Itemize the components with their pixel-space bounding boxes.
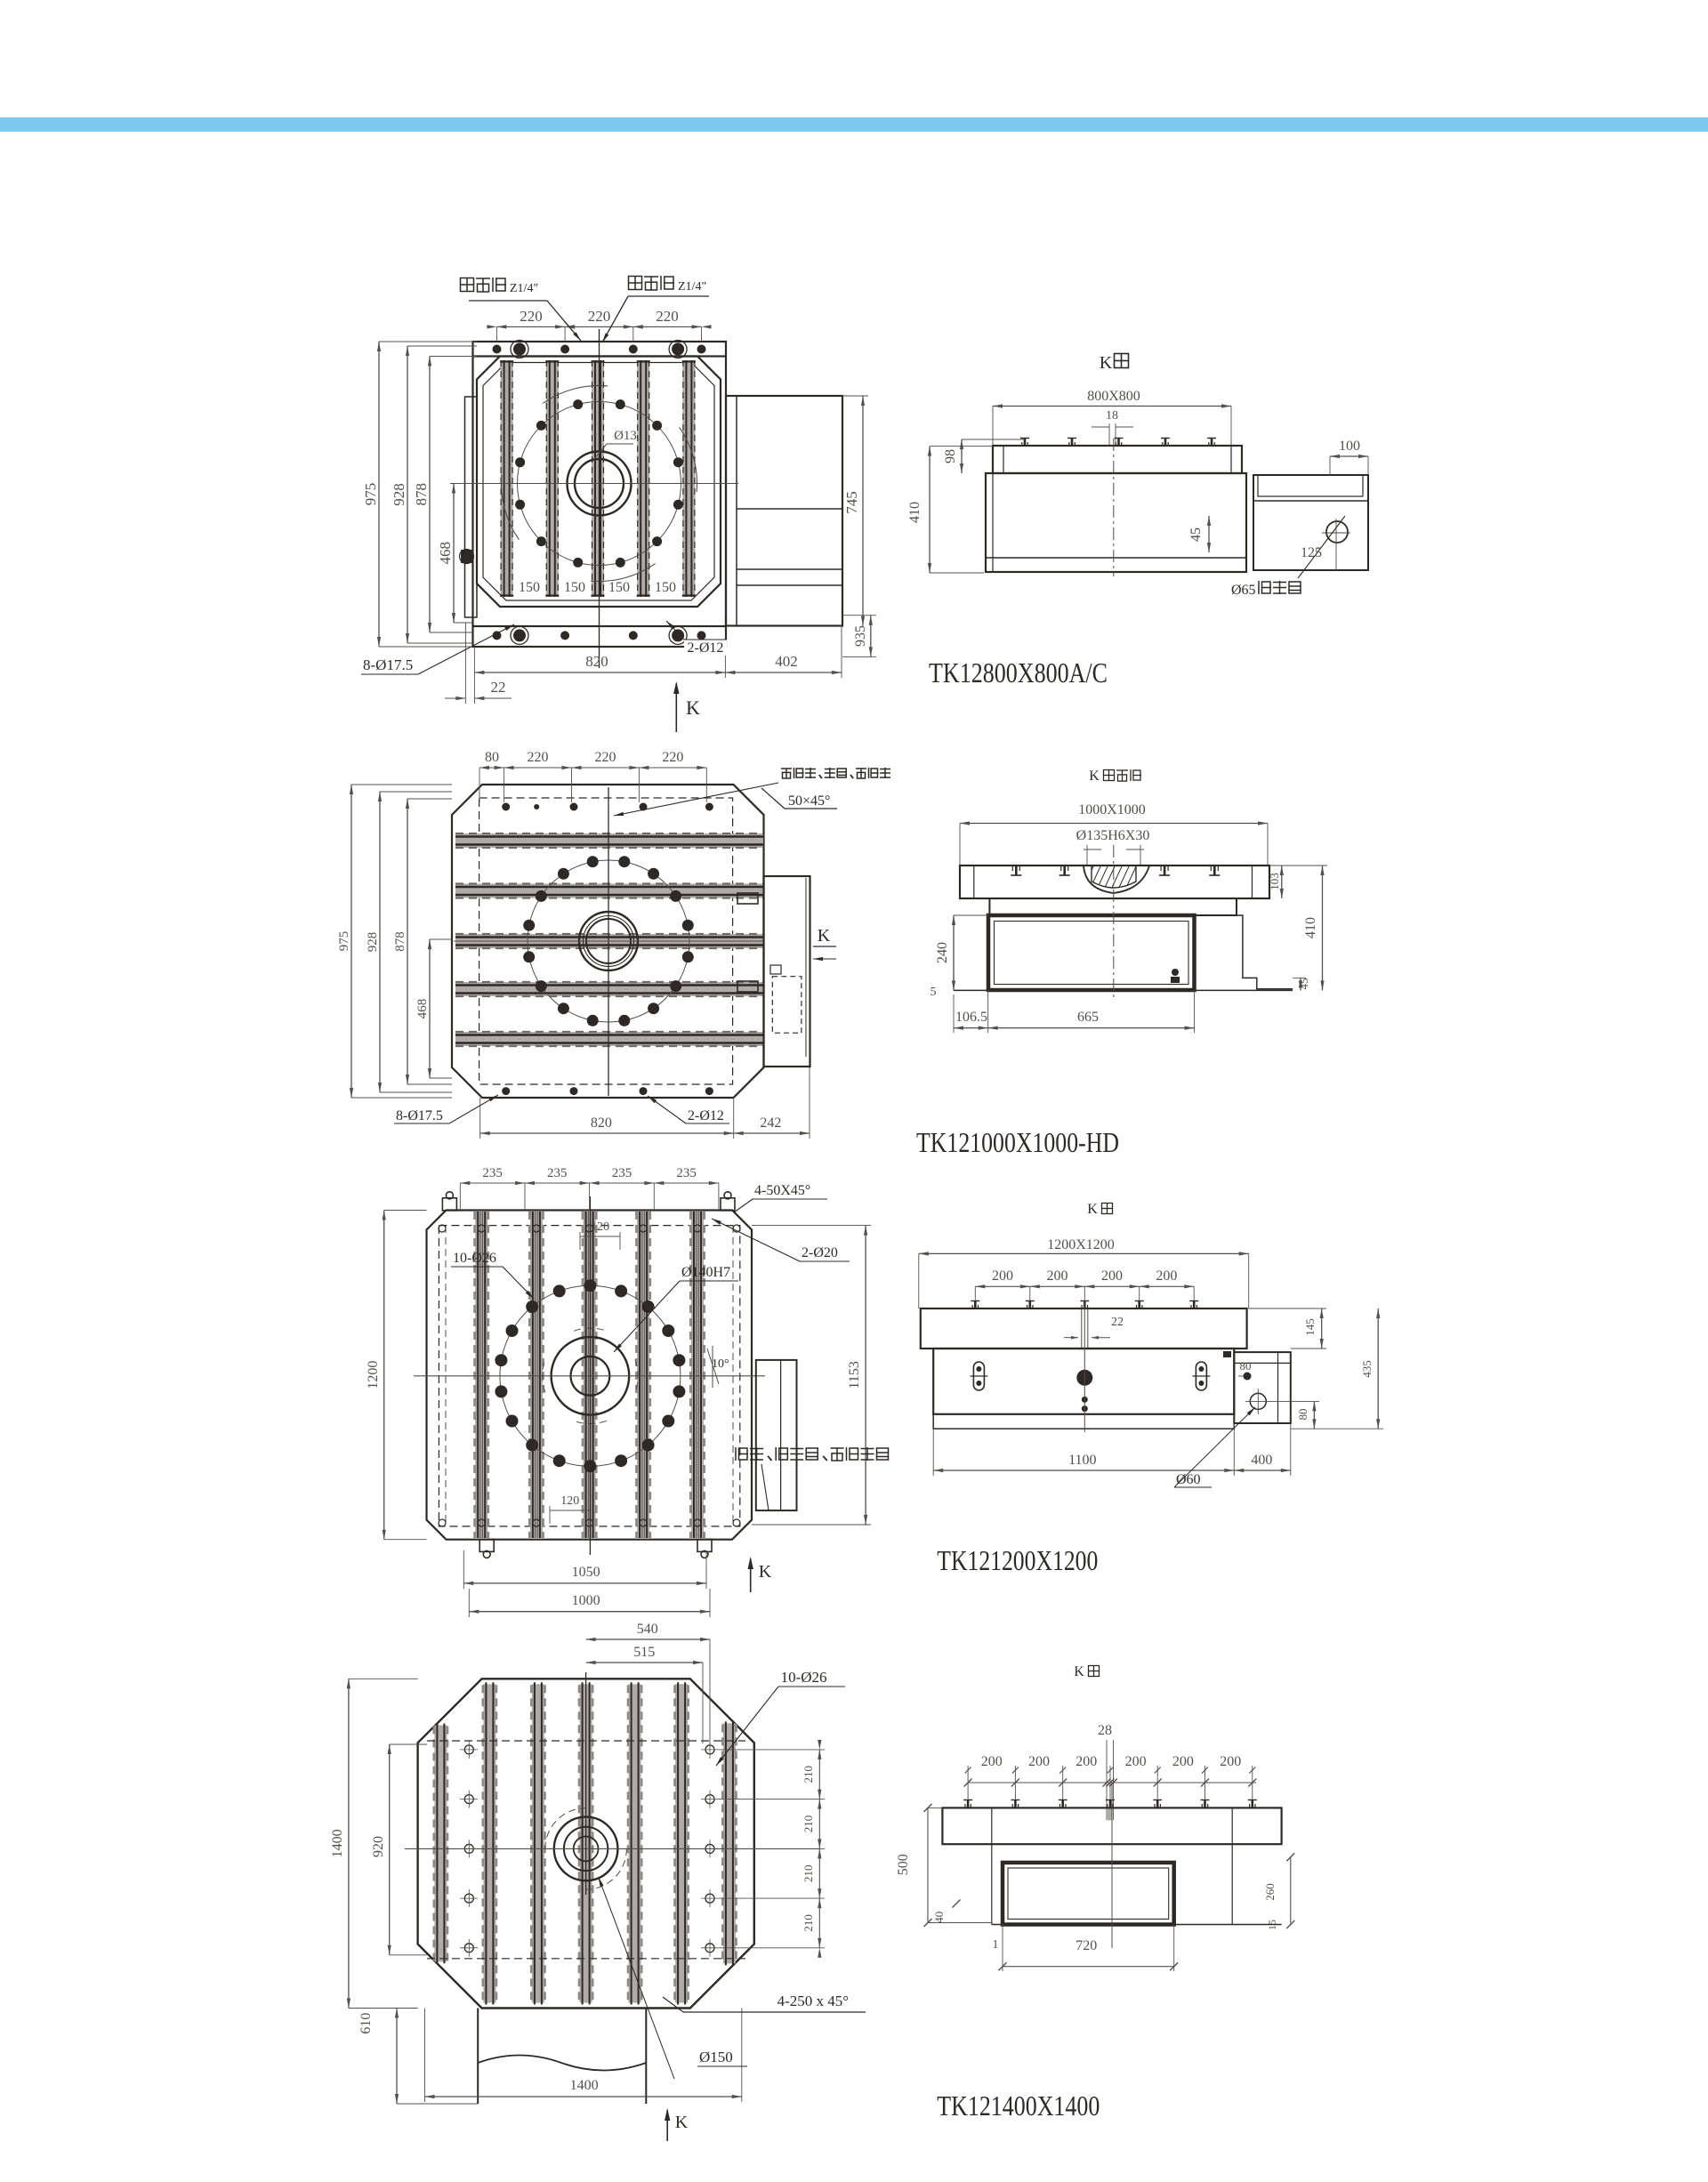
svg-text:235: 235 [547,1166,568,1180]
svg-text:28: 28 [1098,1723,1112,1738]
svg-text:150: 150 [564,580,585,595]
svg-text:935: 935 [853,625,868,647]
svg-text:820: 820 [585,653,608,670]
svg-text:150: 150 [655,580,676,595]
svg-text:210: 210 [802,1864,815,1882]
svg-text:200: 200 [1101,1268,1123,1284]
svg-text:K: K [675,2113,689,2132]
svg-text:Ø150: Ø150 [699,2049,733,2065]
svg-text:200: 200 [1047,1268,1068,1284]
svg-text:Z1/4": Z1/4" [510,282,538,295]
svg-text:515: 515 [633,1645,655,1660]
svg-text:5: 5 [931,986,937,999]
svg-text:468: 468 [437,542,454,565]
svg-text:800X800: 800X800 [1087,389,1140,404]
svg-text:1153: 1153 [847,1361,862,1389]
svg-text:80: 80 [485,750,499,765]
svg-text:240: 240 [935,942,950,963]
svg-text:106.5: 106.5 [955,1010,987,1025]
svg-text:2-Ø20: 2-Ø20 [802,1245,838,1260]
svg-text:K: K [759,1562,772,1582]
svg-text:665: 665 [1077,1010,1099,1025]
svg-text:2-Ø12: 2-Ø12 [688,1108,724,1123]
svg-text:TK121000X1000-HD: TK121000X1000-HD [916,1126,1119,1158]
svg-text:4-250 x 45°: 4-250 x 45° [777,1993,849,2009]
svg-text:242: 242 [760,1115,781,1131]
svg-text:235: 235 [676,1166,697,1180]
svg-text:80: 80 [1296,1409,1309,1421]
svg-text:10-Ø26: 10-Ø26 [453,1251,496,1266]
svg-text:210: 210 [802,1766,815,1783]
svg-text:220: 220 [656,308,679,325]
svg-text:975: 975 [337,931,351,952]
svg-text:410: 410 [907,502,922,523]
svg-text:TK121400X1400: TK121400X1400 [937,2089,1100,2122]
svg-text:Ø135H6X30: Ø135H6X30 [1076,828,1150,843]
svg-text:22: 22 [491,679,506,696]
svg-text:98: 98 [943,449,958,463]
svg-text:200: 200 [1125,1754,1147,1769]
svg-text:1200X1200: 1200X1200 [1047,1237,1115,1252]
svg-text:1100: 1100 [1068,1453,1096,1468]
svg-text:1400: 1400 [570,2078,599,2093]
svg-text:220: 220 [662,750,683,765]
svg-text:1400: 1400 [330,1829,345,1857]
svg-text:103: 103 [1268,873,1281,890]
svg-text:1050: 1050 [572,1565,600,1580]
svg-text:50×45°: 50×45° [788,793,830,809]
svg-text:K: K [686,696,700,719]
svg-text:Ø60: Ø60 [1176,1472,1201,1487]
svg-text:402: 402 [775,653,798,670]
svg-text:45: 45 [1188,527,1204,542]
svg-text:878: 878 [413,483,430,506]
svg-text:928: 928 [391,483,407,506]
svg-text:150: 150 [608,580,630,595]
svg-text:235: 235 [482,1166,503,1180]
svg-text:1000: 1000 [572,1593,600,1608]
svg-text:K: K [1074,1664,1084,1679]
svg-text:1: 1 [993,1938,999,1952]
svg-text:8-Ø17.5: 8-Ø17.5 [396,1108,443,1123]
svg-text:720: 720 [1076,1938,1097,1953]
svg-text:220: 220 [588,308,611,325]
svg-text:18: 18 [1106,409,1118,423]
svg-text:400: 400 [1251,1453,1272,1468]
svg-text:210: 210 [802,1816,815,1833]
svg-text:120: 120 [591,1220,609,1234]
svg-text:45: 45 [1297,978,1310,990]
svg-text:K: K [818,926,831,946]
svg-text:928: 928 [366,932,380,953]
svg-text:200: 200 [1172,1754,1194,1769]
svg-text:40: 40 [932,1912,946,1923]
svg-text:4-50X45°: 4-50X45° [754,1183,810,1198]
svg-text:435: 435 [1360,1360,1374,1378]
svg-text:145: 145 [1303,1318,1317,1336]
svg-text:10°: 10° [712,1357,729,1371]
svg-text:468: 468 [415,999,430,1019]
svg-text:125: 125 [1301,545,1322,560]
svg-text:K: K [1100,353,1113,373]
svg-text:TK121200X1200: TK121200X1200 [937,1544,1098,1576]
svg-text:200: 200 [1220,1754,1241,1769]
svg-text:200: 200 [992,1268,1013,1284]
svg-text:2-Ø12: 2-Ø12 [688,640,724,656]
svg-text:15: 15 [1266,1920,1278,1930]
svg-text:210: 210 [802,1914,815,1932]
svg-text:220: 220 [528,750,549,765]
svg-text:878: 878 [393,931,407,952]
svg-text:220: 220 [520,308,543,325]
svg-text:Ø13: Ø13 [614,429,637,443]
svg-text:200: 200 [1156,1268,1177,1284]
svg-text:10-Ø26: 10-Ø26 [781,1669,827,1686]
svg-text:Ø65: Ø65 [1231,583,1256,598]
svg-text:200: 200 [1028,1754,1050,1769]
svg-text:150: 150 [519,580,540,595]
svg-text:745: 745 [843,491,860,514]
svg-text:200: 200 [981,1754,1003,1769]
svg-text:235: 235 [612,1166,632,1180]
svg-text:Z1/4": Z1/4" [678,280,706,294]
svg-text:120: 120 [560,1494,579,1508]
svg-text:22: 22 [1111,1316,1124,1329]
svg-text:1200: 1200 [366,1361,381,1389]
svg-text:500: 500 [896,1854,911,1875]
svg-text:920: 920 [371,1836,386,1857]
svg-text:200: 200 [1076,1754,1097,1769]
svg-text:8-Ø17.5: 8-Ø17.5 [363,656,413,673]
svg-text:80: 80 [1240,1359,1252,1373]
svg-text:975: 975 [362,483,379,506]
svg-text:100: 100 [1339,439,1360,454]
svg-text:540: 540 [637,1622,658,1637]
svg-text:TK12800X800A/C: TK12800X800A/C [929,656,1108,688]
svg-text:410: 410 [1303,917,1318,938]
svg-text:Ø140H7: Ø140H7 [681,1265,730,1280]
svg-text:K: K [1089,769,1100,784]
svg-text:260: 260 [1263,1883,1277,1901]
svg-text:220: 220 [595,750,616,765]
svg-text:820: 820 [591,1115,612,1131]
svg-text:610: 610 [359,2013,374,2034]
svg-text:K: K [1087,1202,1098,1217]
svg-text:1000X1000: 1000X1000 [1078,802,1146,817]
